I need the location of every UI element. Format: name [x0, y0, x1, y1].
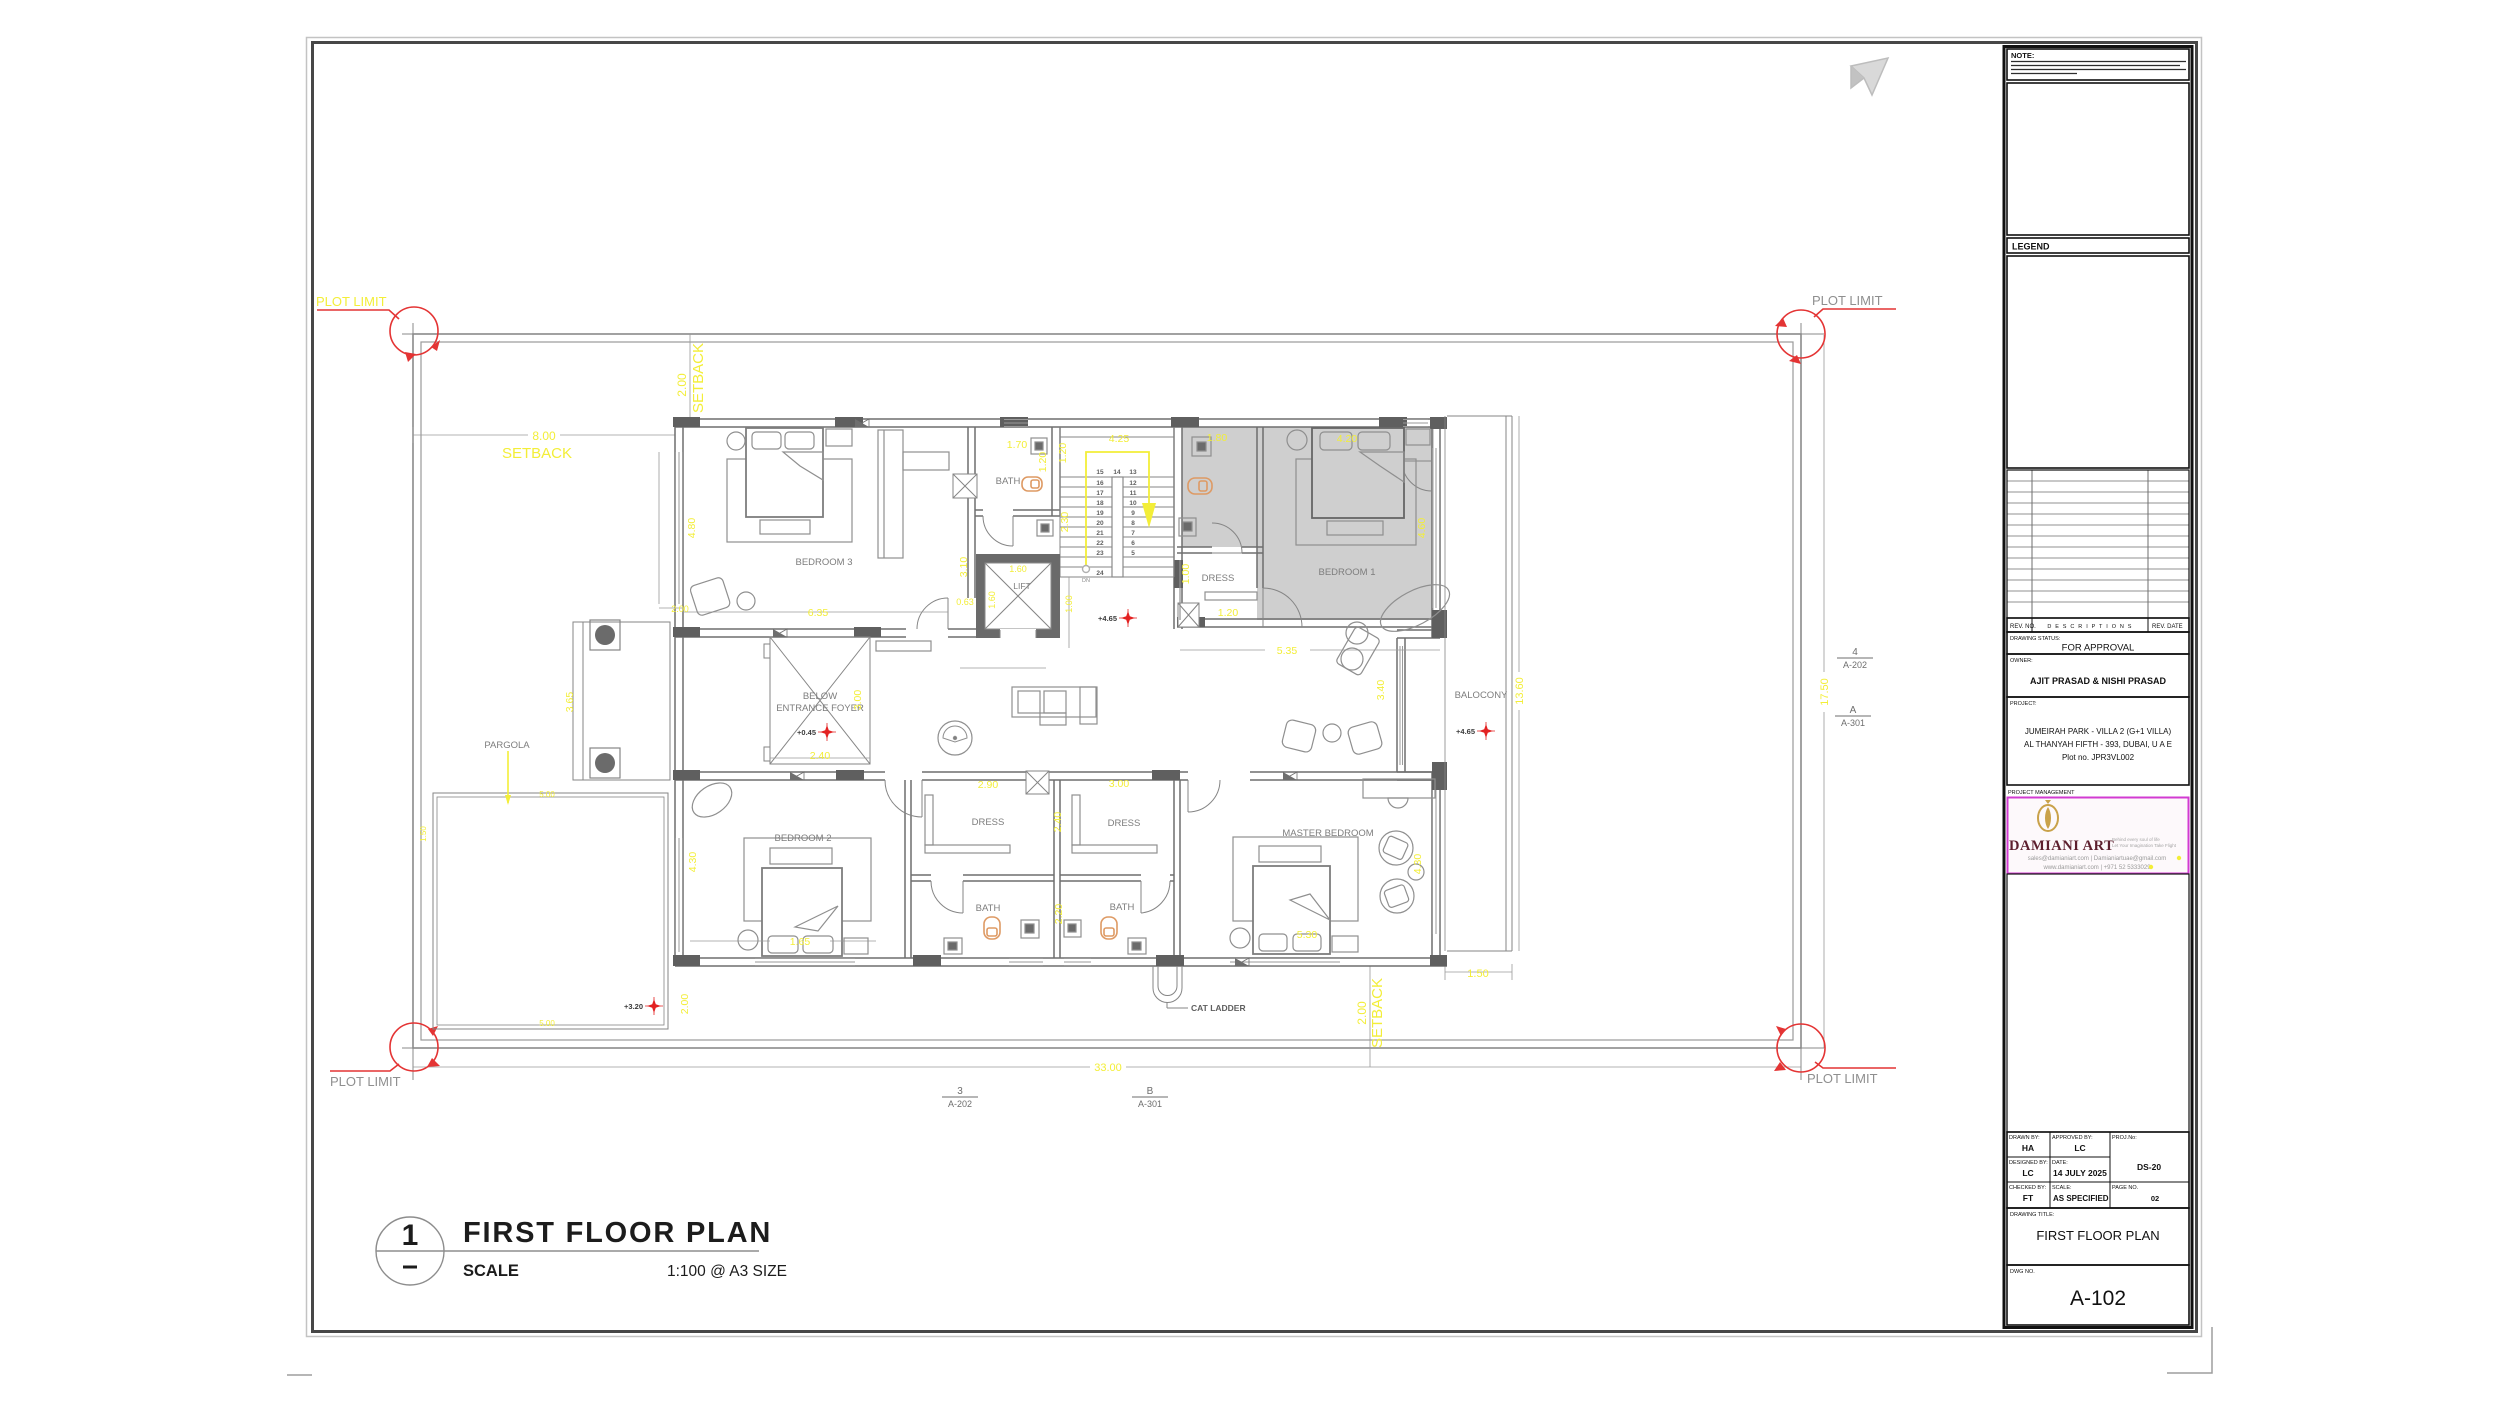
svg-text:2.00: 2.00 [1355, 1001, 1369, 1025]
svg-text:+4.65: +4.65 [1456, 727, 1475, 736]
svg-text:9: 9 [1131, 510, 1135, 517]
svg-text:1.20: 1.20 [1218, 607, 1239, 619]
svg-text:PLOT LIMIT: PLOT LIMIT [1807, 1071, 1878, 1086]
svg-text:ENTRANCE FOYER: ENTRANCE FOYER [776, 703, 864, 714]
svg-text:PROJ.No:: PROJ.No: [2112, 1135, 2137, 1141]
svg-text:Let Your Imagination Take Flig: Let Your Imagination Take Flight [2112, 843, 2177, 848]
svg-text:17.50: 17.50 [1819, 678, 1831, 706]
svg-text:FT: FT [2023, 1193, 2034, 1203]
svg-text:D E S C R I P T I O N S: D E S C R I P T I O N S [2047, 624, 2132, 630]
svg-text:BEDROOM 1: BEDROOM 1 [1318, 567, 1375, 578]
svg-text:A: A [1850, 705, 1857, 716]
svg-text:DRESS: DRESS [1108, 818, 1141, 829]
svg-text:DN: DN [1082, 578, 1090, 584]
svg-text:3.40: 3.40 [1375, 680, 1387, 701]
svg-text:24: 24 [1096, 570, 1104, 577]
svg-text:AJIT PRASAD & NISHI PRASAD: AJIT PRASAD & NISHI PRASAD [2030, 676, 2167, 686]
svg-text:2.40: 2.40 [1052, 812, 1064, 833]
svg-text:0.63: 0.63 [956, 597, 974, 607]
svg-text:BATH: BATH [996, 476, 1021, 487]
svg-text:3.00: 3.00 [1109, 778, 1130, 790]
svg-text:BEDROOM 3: BEDROOM 3 [795, 557, 852, 568]
svg-text:SETBACK: SETBACK [502, 445, 572, 462]
svg-text:AS SPECIFIED: AS SPECIFIED [2053, 1194, 2109, 1203]
svg-text:13.60: 13.60 [1514, 677, 1526, 705]
svg-text:1.50: 1.50 [1467, 968, 1488, 980]
svg-text:8: 8 [1131, 520, 1135, 527]
svg-text:LIFT: LIFT [1013, 581, 1030, 591]
svg-text:12: 12 [1129, 480, 1137, 487]
svg-text:1.50: 1.50 [419, 826, 428, 842]
svg-text:1.00: 1.00 [1064, 595, 1074, 613]
svg-text:A-202: A-202 [1843, 660, 1867, 670]
svg-text:1.60: 1.60 [987, 591, 997, 609]
svg-text:Plot no. JPR3VL002: Plot no. JPR3VL002 [2062, 753, 2135, 762]
svg-text:4.25: 4.25 [1109, 433, 1130, 445]
svg-text:5.35: 5.35 [1277, 645, 1298, 657]
svg-text:4: 4 [1852, 647, 1858, 658]
svg-text:LC: LC [2022, 1168, 2033, 1178]
svg-text:SCALE: SCALE [463, 1262, 519, 1280]
svg-text:BELOW: BELOW [803, 691, 837, 702]
svg-text:+3.20: +3.20 [624, 1002, 643, 1011]
svg-text:FOR APPROVAL: FOR APPROVAL [2062, 643, 2135, 654]
svg-text:1.65: 1.65 [790, 936, 811, 948]
svg-text:5: 5 [1131, 550, 1135, 557]
svg-text:BEDROOM 2: BEDROOM 2 [774, 833, 831, 844]
svg-text:REV. DATE: REV. DATE [2152, 624, 2183, 630]
svg-text:BATH: BATH [976, 903, 1001, 914]
svg-text:18: 18 [1096, 500, 1104, 507]
svg-text:2.00: 2.00 [671, 604, 689, 614]
svg-text:5.00: 5.00 [539, 790, 555, 799]
svg-text:19: 19 [1096, 510, 1104, 517]
svg-text:2.20: 2.20 [1053, 904, 1065, 925]
svg-text:3: 3 [957, 1086, 963, 1097]
svg-text:DRAWING TITLE:: DRAWING TITLE: [2010, 1212, 2055, 1218]
svg-text:A-102: A-102 [2070, 1287, 2126, 1310]
svg-text:LC: LC [2074, 1143, 2085, 1153]
svg-text:DATE:: DATE: [2052, 1160, 2068, 1166]
svg-text:1.60: 1.60 [1009, 564, 1027, 574]
svg-text:14 JULY 2025: 14 JULY 2025 [2053, 1168, 2107, 1178]
svg-text:2.00: 2.00 [679, 994, 691, 1015]
svg-text:7: 7 [1131, 530, 1135, 537]
svg-text:+4.65: +4.65 [1098, 614, 1117, 623]
svg-text:16: 16 [1096, 480, 1104, 487]
svg-text:10: 10 [1129, 500, 1137, 507]
svg-text:DS-20: DS-20 [2137, 1162, 2161, 1172]
svg-text:FIRST FLOOR PLAN: FIRST FLOOR PLAN [463, 1217, 772, 1249]
svg-text:5.00: 5.00 [539, 1019, 555, 1028]
svg-text:PROJECT MANAGEMENT: PROJECT MANAGEMENT [2008, 790, 2075, 796]
svg-text:6.35: 6.35 [808, 607, 829, 619]
svg-text:sales@damianiart.com | Damiani: sales@damianiart.com | Damianiartuae@gma… [2028, 856, 2166, 862]
svg-text:HA: HA [2022, 1143, 2034, 1153]
svg-text:5.30: 5.30 [1297, 929, 1318, 941]
svg-text:LEGEND: LEGEND [2012, 242, 2050, 252]
svg-text:22: 22 [1096, 540, 1104, 547]
svg-text:AL THANYAH FIFTH - 393, DUBAI,: AL THANYAH FIFTH - 393, DUBAI, U A E [2024, 740, 2172, 749]
svg-text:1.70: 1.70 [1007, 439, 1028, 451]
svg-text:14: 14 [1113, 469, 1121, 476]
svg-text:33.00: 33.00 [1094, 1062, 1122, 1074]
svg-text:3.00: 3.00 [852, 690, 864, 711]
svg-text:SCALE:: SCALE: [2052, 1185, 2072, 1191]
svg-text:REV. NO.: REV. NO. [2010, 624, 2036, 630]
svg-text:21: 21 [1096, 530, 1104, 537]
svg-text:PARGOLA: PARGOLA [484, 740, 530, 751]
svg-text:A-301: A-301 [1841, 718, 1865, 728]
svg-text:1.80: 1.80 [1207, 432, 1228, 444]
svg-text:SETBACK: SETBACK [690, 343, 707, 413]
svg-text:DRAWN BY:: DRAWN BY: [2009, 1135, 2040, 1141]
svg-text:17: 17 [1096, 490, 1104, 497]
svg-text:Behind every soul of life: Behind every soul of life [2112, 837, 2160, 842]
svg-text:11: 11 [1130, 490, 1137, 497]
svg-text:2.40: 2.40 [810, 750, 831, 762]
svg-text:4.30: 4.30 [687, 852, 699, 873]
svg-text:2.90: 2.90 [978, 779, 999, 791]
svg-text:PROJECT:: PROJECT: [2010, 701, 2037, 707]
svg-text:CAT LADDER: CAT LADDER [1191, 1003, 1246, 1013]
svg-text:MASTER BEDROOM: MASTER BEDROOM [1282, 828, 1373, 839]
svg-text:www.damianiart.com | +971 52 5: www.damianiart.com | +971 52 5333029 [2042, 865, 2151, 871]
svg-text:DRESS: DRESS [972, 817, 1005, 828]
svg-text:DESIGNED BY:: DESIGNED BY: [2009, 1160, 2048, 1166]
svg-text:1.20: 1.20 [1037, 452, 1049, 473]
svg-text:3.65: 3.65 [564, 692, 576, 713]
svg-text:8.00: 8.00 [532, 429, 556, 443]
svg-text:OWNER:: OWNER: [2010, 658, 2033, 664]
svg-text:02: 02 [2151, 1194, 2159, 1203]
svg-text:+0.45: +0.45 [797, 728, 816, 737]
svg-text:BATH: BATH [1110, 902, 1135, 913]
svg-text:13: 13 [1129, 469, 1137, 476]
svg-text:2.00: 2.00 [675, 373, 689, 397]
svg-text:APPROVED BY:: APPROVED BY: [2052, 1135, 2093, 1141]
svg-text:A-301: A-301 [1138, 1099, 1162, 1109]
svg-text:B: B [1147, 1086, 1154, 1097]
svg-text:1.20: 1.20 [1057, 443, 1069, 464]
svg-text:NOTE:: NOTE: [2011, 51, 2034, 60]
svg-text:1: 1 [402, 1219, 419, 1252]
svg-text:2.30: 2.30 [1059, 512, 1071, 533]
svg-text:1.00: 1.00 [1180, 564, 1192, 585]
svg-text:FIRST FLOOR PLAN: FIRST FLOOR PLAN [2036, 1228, 2159, 1243]
svg-text:JUMEIRAH PARK - VILLA 2 (G+1 V: JUMEIRAH PARK - VILLA 2 (G+1 VILLA) [2025, 727, 2172, 736]
svg-text:DWG NO.: DWG NO. [2010, 1269, 2035, 1275]
svg-text:DAMIANI ART: DAMIANI ART [2009, 838, 2114, 854]
svg-text:1:100 @ A3 SIZE: 1:100 @ A3 SIZE [667, 1263, 787, 1280]
svg-text:PAGE NO.: PAGE NO. [2112, 1185, 2139, 1191]
svg-text:23: 23 [1096, 550, 1104, 557]
svg-text:DRESS: DRESS [1202, 573, 1235, 584]
svg-text:DRAWING STATUS:: DRAWING STATUS: [2010, 636, 2061, 642]
svg-text:CHECKED BY:: CHECKED BY: [2009, 1185, 2046, 1191]
svg-text:BALOCONY: BALOCONY [1455, 690, 1508, 701]
svg-text:15: 15 [1096, 469, 1104, 476]
svg-text:3.10: 3.10 [958, 557, 970, 578]
svg-text:20: 20 [1096, 520, 1104, 527]
svg-text:PLOT LIMIT: PLOT LIMIT [330, 1074, 401, 1089]
svg-text:PLOT LIMIT: PLOT LIMIT [1812, 293, 1883, 308]
svg-text:4.60: 4.60 [1416, 518, 1428, 539]
svg-text:SETBACK: SETBACK [1369, 978, 1386, 1048]
svg-text:4.30: 4.30 [1412, 854, 1424, 875]
svg-text:6: 6 [1131, 540, 1135, 547]
svg-text:A-202: A-202 [948, 1099, 972, 1109]
svg-text:4.80: 4.80 [686, 518, 698, 539]
svg-text:4.20: 4.20 [1337, 433, 1358, 445]
svg-text:PLOT LIMIT: PLOT LIMIT [316, 294, 387, 309]
